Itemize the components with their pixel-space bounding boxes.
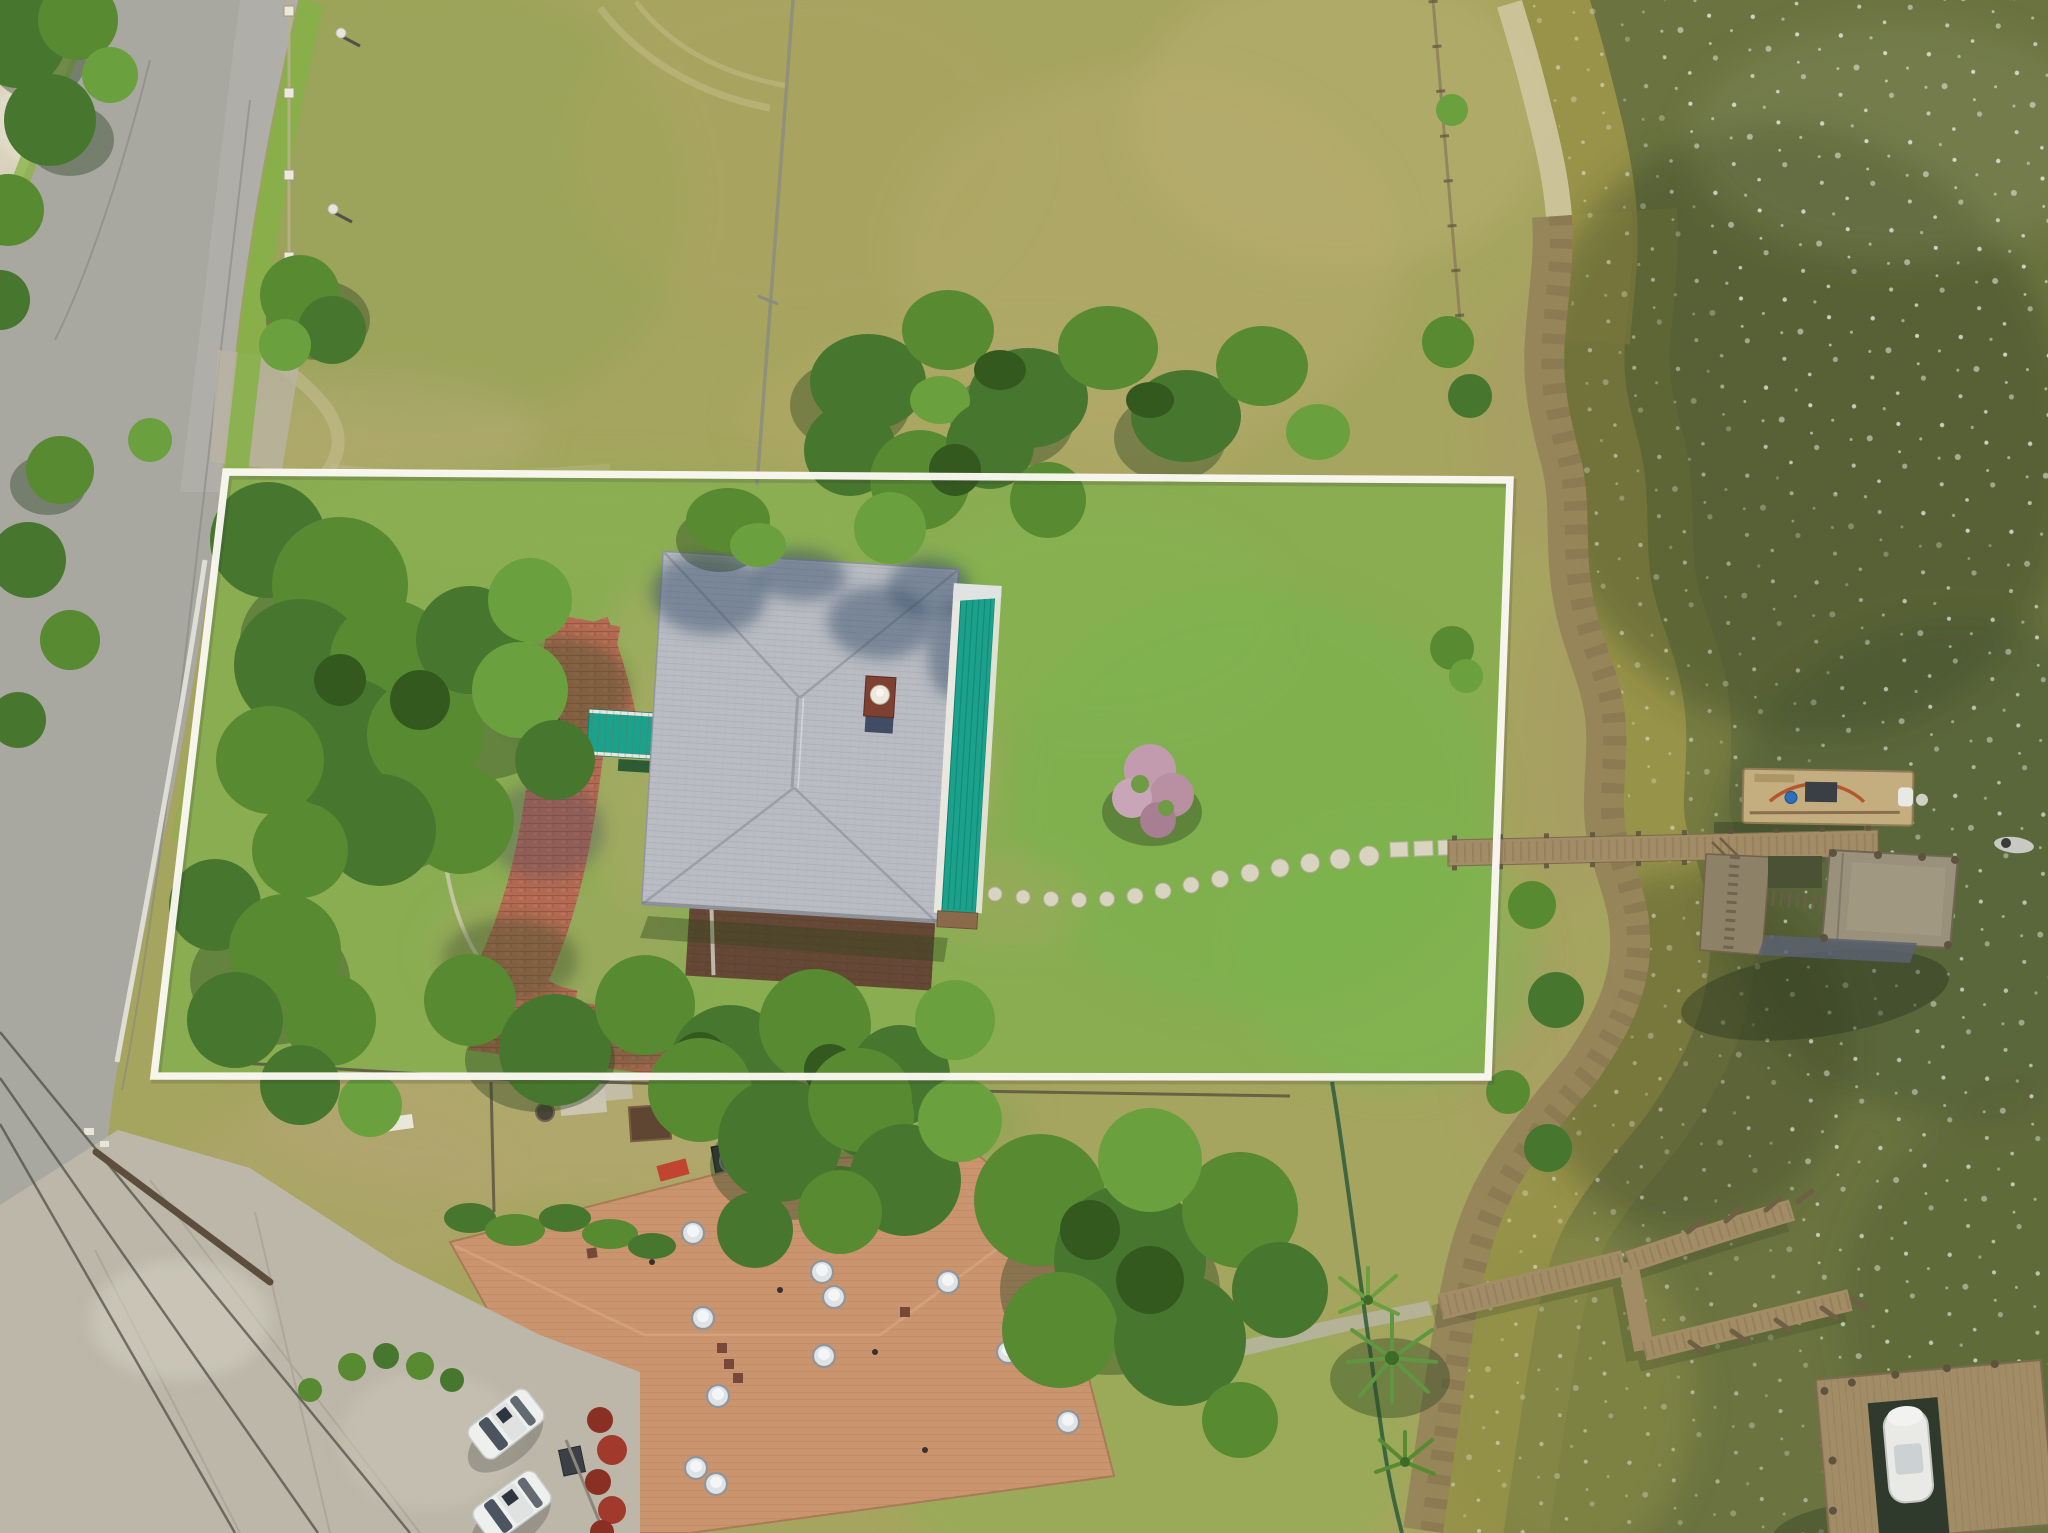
roadside-marker [84, 1128, 94, 1135]
boat-slip-water [1768, 856, 1822, 888]
boathouse [1700, 849, 1959, 963]
outboard-motor [1898, 787, 1913, 806]
porch-steps [937, 911, 978, 929]
chimney [863, 676, 896, 734]
white-boat [1882, 1404, 1934, 1503]
blue-barrel [1785, 791, 1797, 803]
aerial-photo-canvas [0, 0, 2048, 1533]
trash-bin [559, 1446, 586, 1476]
barge-equipment [1805, 782, 1837, 803]
aerial-photo [0, 0, 2048, 1533]
main-roof [632, 540, 986, 925]
work-barge [1743, 769, 1929, 826]
